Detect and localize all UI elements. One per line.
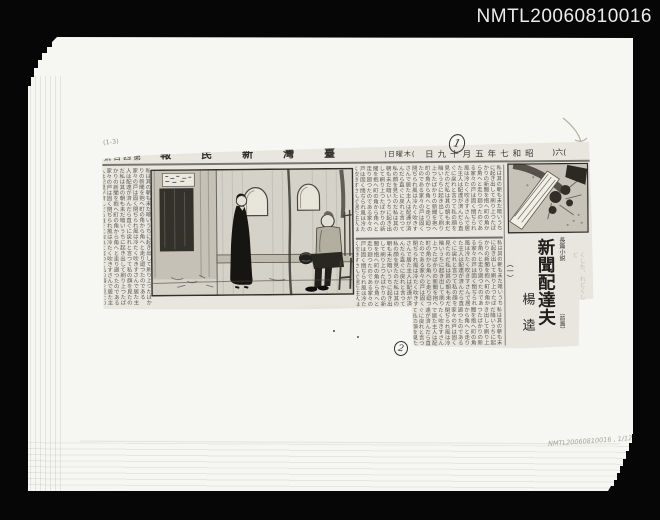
- text-column-block-extension: 私は其の朝も未だ暗いうちに起き出して刷り上つたばかりの新聞を抱へ町の角から角へと…: [413, 307, 501, 347]
- pencil-code-note: (1-3): [103, 137, 119, 147]
- circled-number-1-digit: 1: [452, 136, 462, 150]
- text-column-block-lower: 私は其の朝も未だ暗いうちに起き出して刷り上つたばかりの新聞を抱へ町の角から角へと…: [356, 239, 503, 306]
- story-illustration: [150, 168, 354, 297]
- weekday: )日曜木(: [384, 149, 416, 159]
- paper-speck: [357, 336, 359, 338]
- circled-number-2-digit: 2: [397, 343, 404, 354]
- paper-speck: [333, 330, 335, 332]
- catalog-id-label: NMTL20060810016: [477, 6, 652, 28]
- headline-separator-rule: [503, 164, 506, 345]
- text-column-block-upper: 私は其の朝も未だ暗いうちに起き出して刷り上つたばかりの新聞を抱へ町の角から角へと…: [355, 164, 502, 235]
- title-cut-graphic: [507, 163, 589, 234]
- installment-number: （一）: [505, 260, 515, 281]
- issue-date: 日九十月五年七和昭: [425, 147, 538, 160]
- author-name: 楊逵: [518, 292, 537, 344]
- article-title-note: （前篇）: [558, 310, 564, 332]
- article-category-label: 長篇小説: [558, 237, 565, 265]
- sheet-edges-left: [25, 76, 61, 492]
- article-title: 新聞配達夫: [536, 238, 556, 326]
- pencil-scribble: [555, 112, 605, 152]
- photographed-document: NMTL20060810016 )六( 日九十月五年七和昭 )日曜木( 報民新灣…: [0, 0, 660, 520]
- text-column-block-left: 私は其の朝も未だ暗いうちに起き出して刷り上つたばかりの新聞を抱へ町の角から角へと…: [103, 168, 151, 310]
- sheet-edges-bottom: [25, 442, 635, 494]
